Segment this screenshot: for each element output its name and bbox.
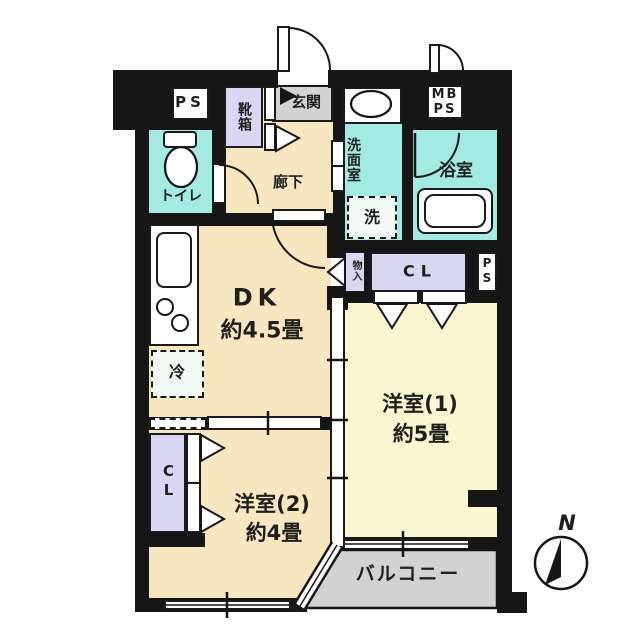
- window-bottom: [164, 600, 291, 610]
- toilet-door-leaf: [212, 163, 226, 204]
- wall-washroom-bath: [402, 120, 413, 240]
- compass-north-label: N: [558, 512, 576, 534]
- wall-top-right: [328, 70, 512, 88]
- wall-jut-right: [468, 490, 497, 507]
- dk-door-leaf: [272, 209, 326, 222]
- wall-storage-left-upper: [327, 213, 345, 258]
- sliding-door-dk-west2: [207, 416, 322, 430]
- floor-plan: PS 靴箱 玄関 MB PS トイレ 廊下 洗面室 洗 浴室 物入 CL PS …: [0, 0, 640, 640]
- entrance-floor: [272, 85, 333, 122]
- closet-main-door-left: [373, 290, 419, 304]
- wall-foot-bottom-right: [497, 592, 527, 613]
- storage-box: [345, 252, 365, 292]
- vanity-counter: [343, 87, 402, 124]
- compass-needle: [545, 539, 561, 585]
- wall-below-closet2: [135, 533, 205, 547]
- shoe-box: [224, 86, 263, 148]
- balcony-floor: [303, 550, 497, 608]
- compass-circle: [535, 537, 587, 589]
- closet-west2-doors: [186, 433, 201, 533]
- closet-main-door-right: [421, 290, 467, 304]
- washroom-door: [331, 140, 345, 192]
- partition-wall: [330, 296, 345, 548]
- shoe-box-door-lower: [264, 123, 276, 151]
- meter-box-door-arc: [439, 45, 463, 71]
- wall-topleft-block: [113, 70, 137, 130]
- wall-below-wetarea: [327, 240, 512, 252]
- dk-west2-opening: [149, 418, 207, 429]
- closet-main-box: [370, 252, 467, 292]
- entrance-door-leaf: [277, 26, 290, 72]
- kitchen-sink: [156, 232, 192, 288]
- pipe-space-right-box: [477, 252, 497, 292]
- refrigerator-box: [151, 350, 204, 398]
- pipe-space-top-box: [172, 87, 209, 120]
- closet-west2-box: [149, 433, 186, 533]
- meter-box-door-leaf: [429, 44, 440, 74]
- wall-closet-ps-gap: [467, 252, 477, 292]
- window-western1: [343, 539, 470, 550]
- entrance-door-arc: [289, 28, 330, 70]
- wall-right: [497, 70, 512, 598]
- washer-box: [347, 196, 397, 239]
- shoe-box-door-upper: [264, 86, 276, 121]
- bathtub-inner: [424, 194, 486, 228]
- toilet-tank: [163, 131, 197, 148]
- balcony-label: バルコニー: [356, 565, 461, 585]
- meter-box: [427, 85, 463, 119]
